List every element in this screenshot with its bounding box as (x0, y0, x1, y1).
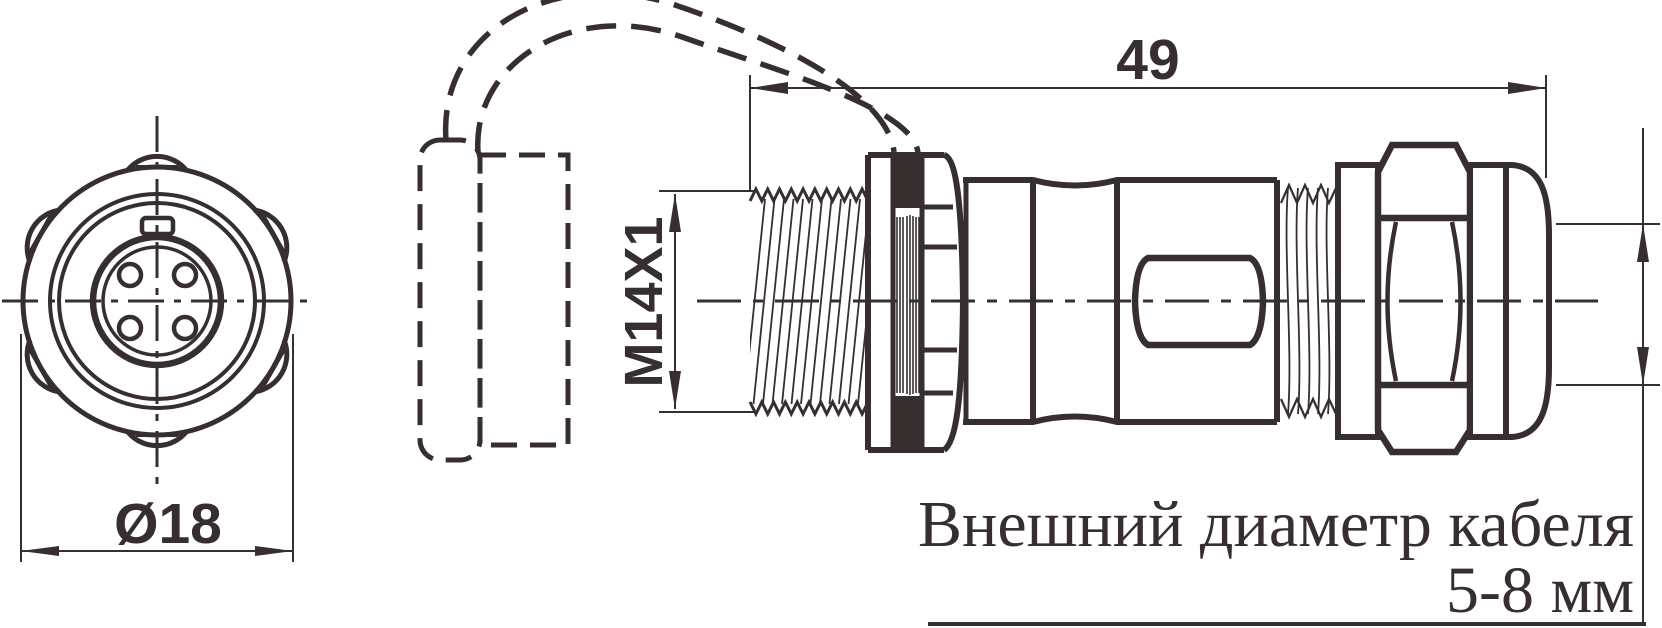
gasket-hatch (897, 215, 919, 395)
pin-circle (174, 317, 196, 339)
note-line-1: Внешний диаметр кабеля (918, 488, 1634, 561)
note-line-2: 5-8 мм (1446, 554, 1634, 627)
cable-gland (1281, 145, 1549, 452)
section-fill-top (894, 157, 920, 208)
section-fill-bottom (894, 396, 920, 448)
cap-body (420, 140, 480, 460)
strap-outer-edge (446, 0, 894, 152)
thread-crest-bottom (750, 402, 868, 414)
diameter-dim-label: Ø18 (114, 492, 222, 556)
cap-strap-dashed (446, 0, 918, 153)
hex-nut-outline (1378, 145, 1470, 452)
pin-circle (174, 264, 196, 286)
dimension-arrow (1637, 224, 1649, 262)
side-view (697, 145, 1598, 452)
length-dim-label: 49 (1116, 28, 1179, 92)
drawing-canvas: Ø18 (0, 0, 1662, 628)
dimension-arrow (255, 546, 293, 556)
dimension-arrow (750, 82, 788, 94)
pin-circle (119, 317, 141, 339)
pin-circle (119, 264, 141, 286)
dimension-arrow (1637, 347, 1649, 385)
dust-cap-dashed (420, 140, 568, 460)
cable-note: Внешний диаметр кабеля 5-8 мм (918, 488, 1646, 627)
connector-technical-drawing: Ø18 (0, 0, 1662, 628)
dimension-arrow (1508, 82, 1546, 94)
gland-hex-nut (1378, 145, 1470, 452)
front-view (2, 116, 316, 490)
thread-dim-label: M14X1 (614, 216, 674, 387)
dimension-arrow (21, 546, 59, 556)
cap-skirt (480, 155, 568, 445)
